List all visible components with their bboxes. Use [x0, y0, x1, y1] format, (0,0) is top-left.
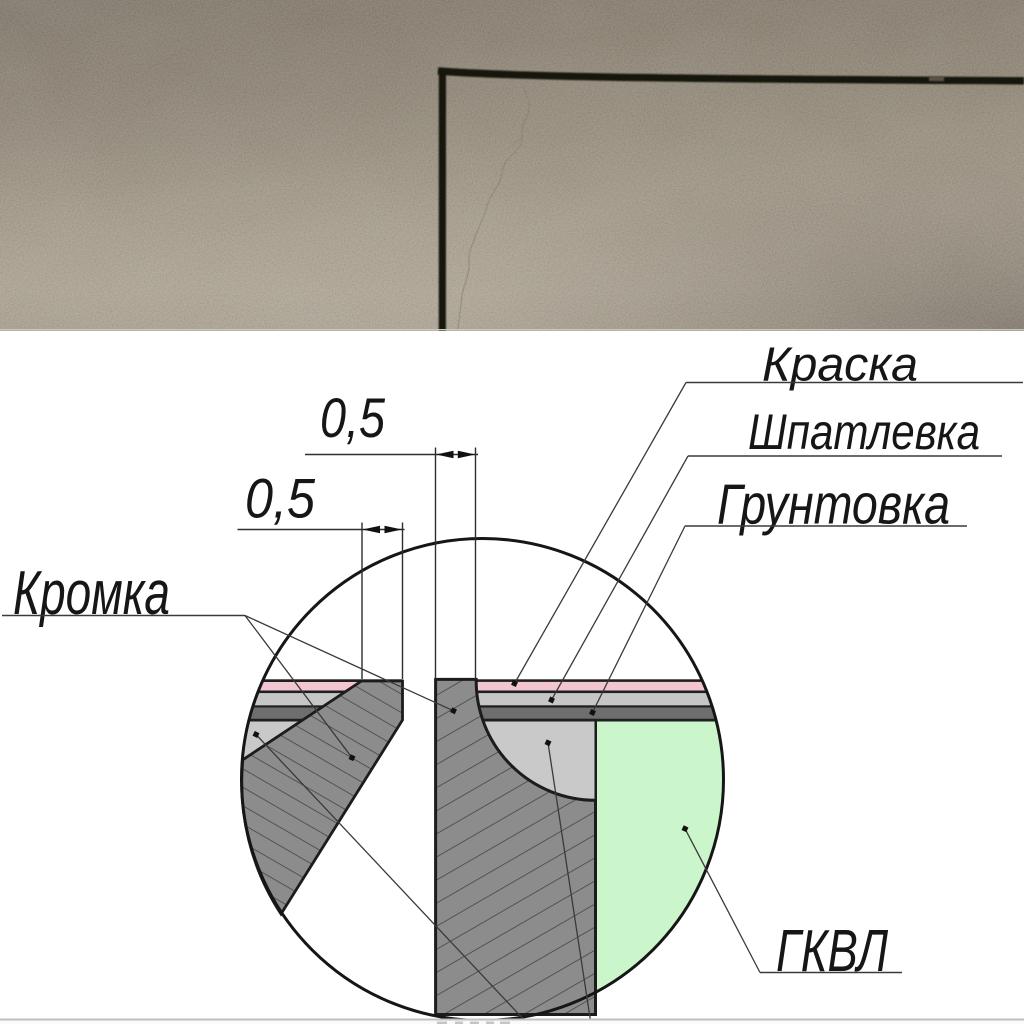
svg-text:0,5: 0,5: [245, 467, 316, 530]
svg-text:0,5: 0,5: [320, 386, 386, 449]
svg-text:ГКВЛ: ГКВЛ: [776, 918, 888, 984]
svg-text:Шпатлевка: Шпатлевка: [748, 404, 980, 460]
svg-text:Грунтовка: Грунтовка: [717, 473, 950, 537]
svg-text:Кромка: Кромка: [13, 559, 170, 628]
svg-text:Краска: Краска: [762, 339, 918, 392]
